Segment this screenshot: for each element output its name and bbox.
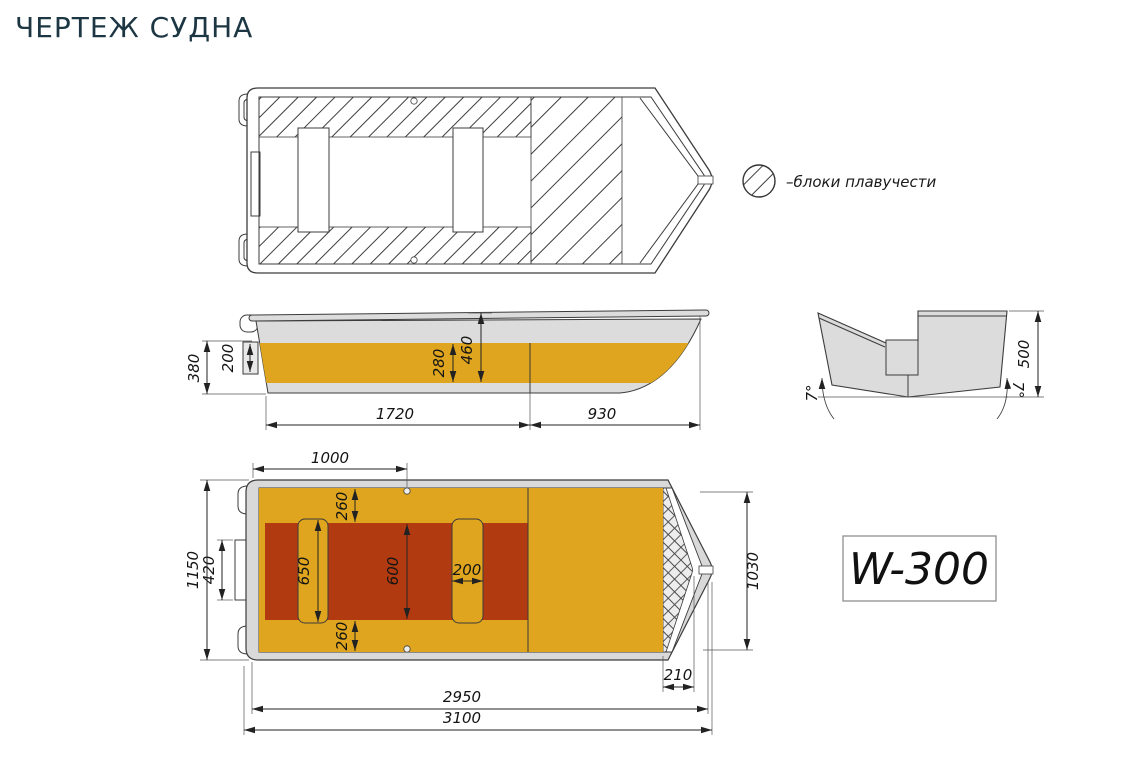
plan-bow-eye	[699, 566, 713, 574]
side-yellow-band	[250, 343, 720, 383]
dim-1150: 1150	[184, 551, 202, 589]
dim-650: 650	[295, 557, 313, 586]
motor-well	[886, 340, 918, 375]
dim-200: 200	[219, 344, 237, 373]
fitting-top	[411, 98, 417, 104]
legend-label: –блоки плавучести	[786, 173, 936, 191]
model-badge-label: W-300	[849, 544, 989, 595]
dim-1720: 1720	[376, 405, 414, 423]
dim-460: 460	[458, 336, 476, 365]
side-view: 380 200 280 460 1720 930	[185, 313, 720, 430]
plan-fitting-top	[404, 488, 410, 494]
dim-280: 280	[430, 349, 448, 378]
dim-260-top: 260	[333, 492, 351, 521]
dim-2950: 2950	[443, 688, 481, 706]
boat-drawing-page: ЧЕРТЕЖ СУДНА –блоки плавучести	[0, 0, 1143, 776]
plan-fitting-bottom	[404, 646, 410, 652]
bench-seat-2	[453, 128, 483, 232]
dim-500: 500	[1015, 340, 1033, 369]
fitting-bottom	[411, 257, 417, 263]
dim-deadrise-left: 7°	[803, 384, 821, 401]
legend-hatch-swatch-icon	[743, 165, 775, 197]
dim-420: 420	[200, 556, 218, 585]
legend: –блоки плавучести	[743, 165, 936, 197]
bottom-plan-view: 1000 260 420 650 600 200 260 1150 1030 2…	[184, 449, 762, 735]
dim-210: 210	[664, 666, 693, 684]
dim-3100: 3100	[443, 709, 481, 727]
dim-1030: 1030	[744, 552, 762, 590]
drawing-canvas: ЧЕРТЕЖ СУДНА –блоки плавучести	[0, 0, 1143, 776]
dim-260-bottom: 260	[333, 622, 351, 651]
dim-930: 930	[588, 405, 617, 423]
dim-200-bench: 200	[453, 561, 482, 579]
bow-eye	[698, 176, 713, 184]
dim-600: 600	[384, 557, 402, 586]
buoyancy-bow-block	[531, 97, 622, 264]
rear-view: 7° 7° 500	[803, 311, 1044, 419]
bench-seat-1	[298, 128, 329, 232]
dim-deadrise-right: 7°	[1009, 381, 1027, 398]
model-badge: W-300	[843, 536, 996, 601]
dim-380: 380	[185, 354, 203, 383]
top-view	[239, 88, 713, 273]
buoyancy-band-bottom	[259, 227, 531, 264]
dim-1000: 1000	[311, 449, 349, 467]
page-title: ЧЕРТЕЖ СУДНА	[15, 11, 253, 44]
